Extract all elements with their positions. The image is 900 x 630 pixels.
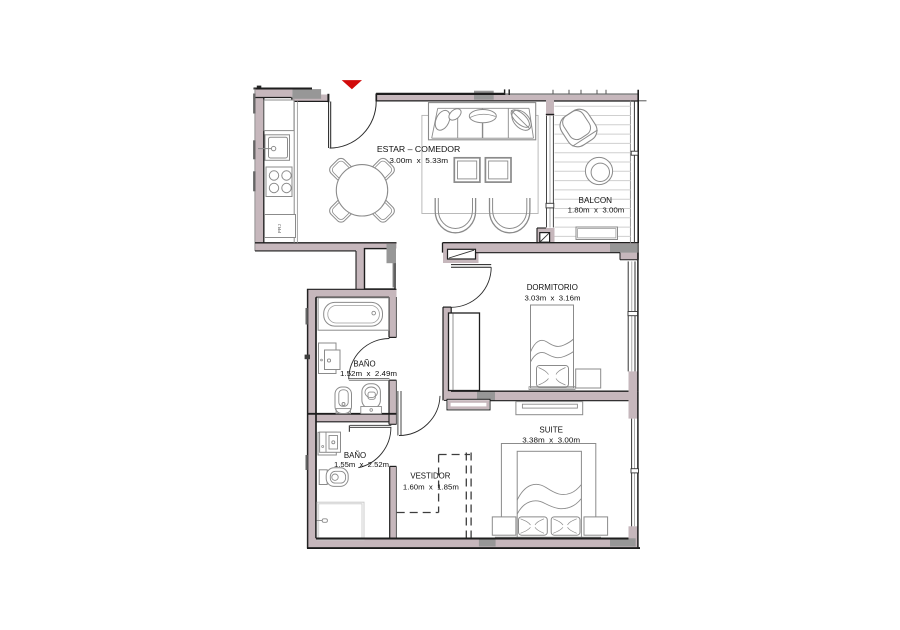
- svg-text:3.38m x 3.00m: 3.38m x 3.00m: [522, 436, 580, 445]
- svg-text:BAÑO: BAÑO: [344, 450, 367, 460]
- svg-text:DORMITORIO: DORMITORIO: [527, 282, 579, 292]
- svg-text:1.55m x 2.52m: 1.55m x 2.52m: [334, 460, 389, 469]
- svg-text:1.52m x 2.49m: 1.52m x 2.49m: [340, 369, 397, 378]
- svg-text:3.00m x 5.33m: 3.00m x 5.33m: [389, 156, 448, 165]
- svg-text:BAÑO: BAÑO: [353, 358, 376, 368]
- svg-text:1.60m x 1.85m: 1.60m x 1.85m: [403, 483, 459, 492]
- svg-text:3.03m x 3.16m: 3.03m x 3.16m: [525, 293, 581, 302]
- svg-text:SUITE: SUITE: [539, 424, 563, 434]
- svg-text:VESTIDOR: VESTIDOR: [410, 471, 450, 481]
- svg-text:ESTAR – COMEDOR: ESTAR – COMEDOR: [377, 144, 461, 154]
- svg-text:BALCON: BALCON: [579, 195, 613, 205]
- svg-text:1.80m x 3.00m: 1.80m x 3.00m: [568, 206, 625, 215]
- svg-text:FRJ: FRJ: [277, 224, 283, 233]
